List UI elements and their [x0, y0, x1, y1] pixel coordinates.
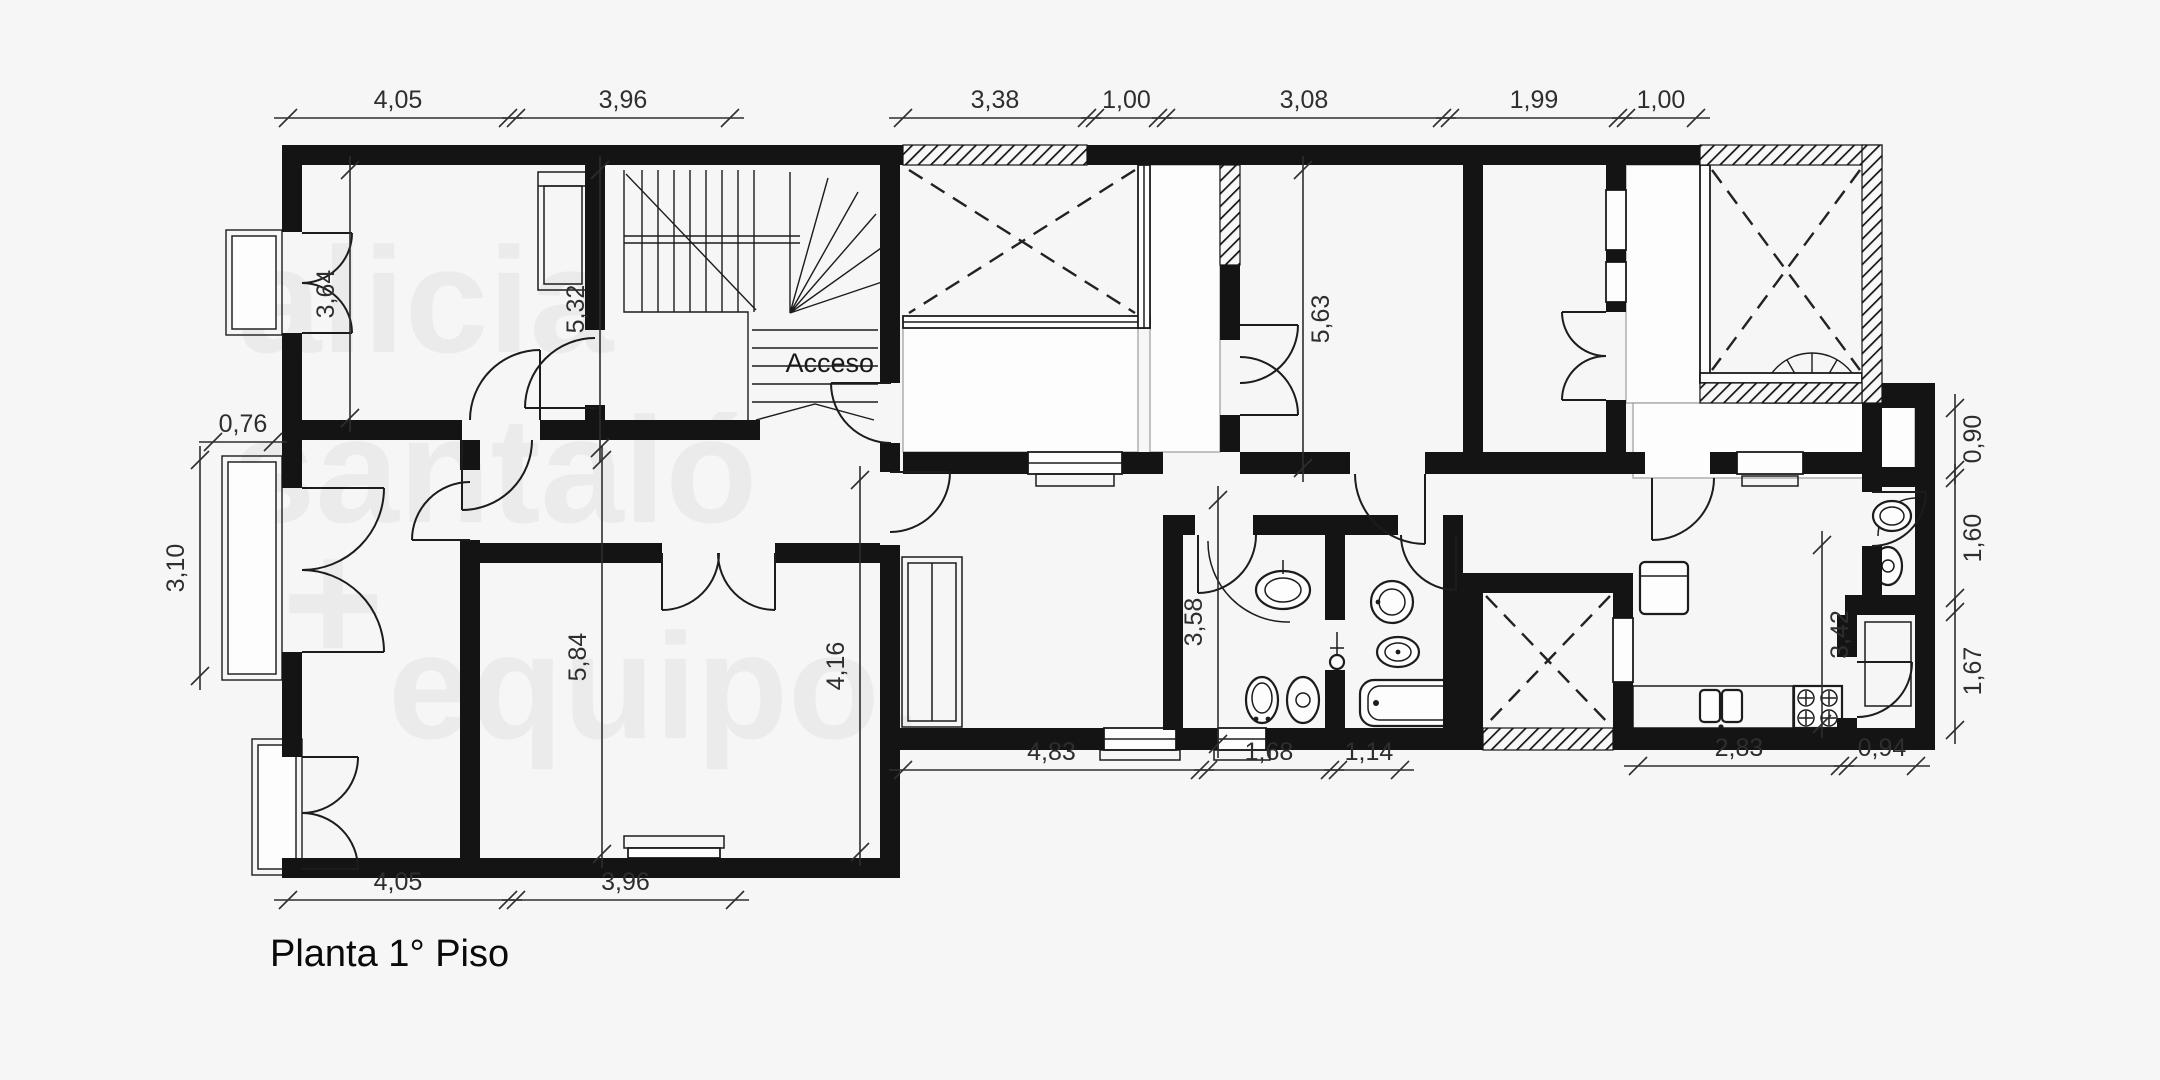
bathroom-sink	[1371, 581, 1413, 623]
dim-label: 0,76	[219, 410, 268, 438]
dim-label: 1,67	[1959, 647, 1987, 696]
dim-label: 5,84	[564, 633, 592, 682]
stair-treads-upper	[624, 170, 800, 312]
dim-label: 4,05	[374, 86, 423, 114]
dim-label: 4,83	[1027, 738, 1076, 766]
toilet	[1246, 677, 1278, 723]
dim-label: 3,08	[1280, 86, 1329, 114]
dim-label: 1,99	[1510, 86, 1559, 114]
corner-patio-glazing	[1700, 165, 1862, 383]
dim-label: 4,16	[822, 642, 850, 691]
right-corridor-tiles	[1626, 165, 1700, 403]
kitchen-sink	[1700, 690, 1742, 730]
acceso-label: Acceso	[785, 348, 874, 378]
dim-label: 3,58	[1180, 598, 1208, 647]
dim-label: 1,60	[1959, 514, 1987, 563]
balcony-tiles-middle	[228, 462, 276, 674]
dim-label: 5,32	[562, 285, 590, 334]
dim-label: 1,00	[1102, 86, 1151, 114]
floor-plan-drawing: alicia santaló + equipo.	[0, 0, 2160, 1080]
dim-label: 0,90	[1959, 415, 1987, 464]
dim-label: 3,96	[599, 86, 648, 114]
french-door	[1240, 325, 1298, 415]
patio-corridor-tiles	[1150, 165, 1220, 452]
floor-plan-page: alicia santaló + equipo.	[0, 0, 2160, 1080]
bedroom-window	[1606, 190, 1626, 250]
entry-door	[831, 383, 891, 443]
kitchen-door	[1652, 478, 1714, 540]
fridge	[1640, 562, 1688, 614]
bathroom-sink	[1208, 541, 1310, 622]
balcony-tiles-lower	[258, 745, 296, 869]
pass-window	[1028, 452, 1122, 486]
dim-label: 3,42	[1826, 610, 1854, 659]
south-window	[1100, 728, 1180, 760]
dim-label: 2,83	[1715, 734, 1764, 762]
entry-hall-tiles	[903, 328, 1138, 452]
page-title: Planta 1° Piso	[270, 933, 509, 975]
balcony-tiles-upper	[232, 236, 276, 329]
dim-label: 3,38	[971, 86, 1020, 114]
bedroom-window	[1606, 262, 1626, 302]
dim-label: 1,00	[1637, 86, 1686, 114]
kitchen-pass-window	[1737, 452, 1803, 486]
french-door	[1562, 312, 1606, 400]
dim-label: 5,63	[1307, 295, 1335, 344]
south-window	[624, 836, 724, 858]
dim-label: 0,94	[1858, 734, 1907, 762]
shower-tap	[1330, 632, 1344, 669]
dim-label: 3,96	[601, 868, 650, 896]
stove	[1794, 686, 1842, 728]
balcony-door	[302, 757, 358, 869]
shaft-window	[1613, 618, 1633, 682]
dim-label: 1,14	[1345, 738, 1394, 766]
bidet	[1287, 677, 1319, 723]
dim-label: 4,05	[374, 868, 423, 896]
bathroom-door	[1198, 535, 1256, 593]
dim-label: 1,68	[1245, 738, 1294, 766]
stair-winders	[790, 172, 888, 313]
interior-door	[890, 472, 950, 532]
dim-label: 3,64	[312, 270, 340, 319]
dim-label: 3,10	[162, 544, 190, 593]
shower-tray	[1865, 622, 1911, 706]
toilet	[1377, 637, 1419, 667]
